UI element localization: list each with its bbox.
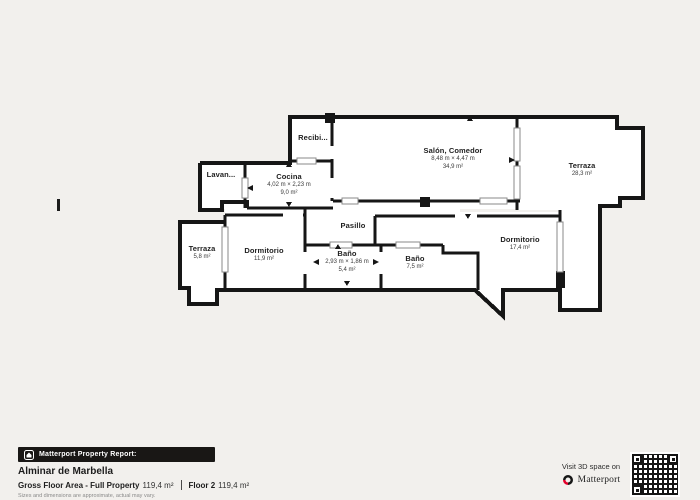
room-name: Recibi... (298, 133, 328, 142)
room-area: 5,8 m² (189, 253, 216, 261)
room-label-terraza-right: Terraza 28,3 m² (569, 161, 596, 178)
matterport-logo-icon (562, 474, 574, 486)
room-name: Lavan... (207, 170, 236, 179)
room-area: 9,0 m² (267, 189, 311, 197)
property-name: Alminar de Marbella (18, 466, 113, 477)
room-name: Baño (405, 254, 424, 263)
qr-code (630, 452, 680, 497)
disclaimer-text: Sizes and dimensions are approximate, ac… (18, 493, 155, 499)
room-name: Baño (325, 249, 369, 258)
room-label-salon-comedor: Salón, Comedor 8,48 m × 4,47 m 34,9 m² (424, 146, 483, 171)
room-name: Dormitorio (244, 246, 283, 255)
room-name: Cocina (267, 172, 311, 181)
gross-floor-area-value: 119,4 m² (143, 481, 174, 490)
gross-floor-area-label: Gross Floor Area - Full Property (18, 481, 140, 490)
room-label-bano-right: Baño 7,5 m² (405, 254, 424, 271)
report-bar-label: Matterport Property Report: (39, 451, 137, 458)
room-area: 34,9 m² (424, 163, 483, 171)
divider (181, 480, 182, 490)
floor-label: Floor 2 (189, 481, 216, 490)
visit-3d-block: Visit 3D space on Matterport (548, 462, 634, 486)
qr-finder-top-left (632, 454, 642, 464)
room-area: 7,5 m² (405, 263, 424, 271)
room-dimensions: 4,02 m × 2,23 m (267, 181, 311, 189)
room-area: 17,4 m² (500, 244, 539, 252)
room-dimensions: 8,48 m × 4,47 m (424, 155, 483, 163)
floor-area-line: Gross Floor Area - Full Property 119,4 m… (18, 480, 249, 490)
visit-3d-text: Visit 3D space on (548, 462, 634, 472)
report-bar: Matterport Property Report: (18, 447, 215, 462)
property-report-page: Recibi... Lavan... Cocina 4,02 m × 2,23 … (0, 0, 700, 500)
qr-finder-bottom-left (632, 485, 642, 495)
room-dimensions: 2,93 m × 1,86 m (325, 258, 369, 266)
floor-value: 119,4 m² (218, 481, 249, 490)
room-label-lavanderia: Lavan... (207, 170, 236, 179)
room-label-dormitorio-right: Dormitorio 17,4 m² (500, 235, 539, 252)
brand-name: Matterport (578, 475, 621, 485)
room-name: Dormitorio (500, 235, 539, 244)
room-label-cocina: Cocina 4,02 m × 2,23 m 9,0 m² (267, 172, 311, 197)
room-name: Salón, Comedor (424, 146, 483, 155)
room-label-bano-small: Baño 2,93 m × 1,86 m 5,4 m² (325, 249, 369, 274)
room-label-recibidor: Recibi... (298, 133, 328, 142)
room-name: Pasillo (341, 221, 366, 230)
qr-finder-top-right (668, 454, 678, 464)
room-label-pasillo: Pasillo (341, 221, 366, 230)
room-label-terraza-left: Terraza 5,8 m² (189, 244, 216, 261)
brand-row: Matterport (548, 474, 634, 486)
room-area: 11,9 m² (244, 255, 283, 263)
room-label-dormitorio-left: Dormitorio 11,9 m² (244, 246, 283, 263)
room-area: 28,3 m² (569, 170, 596, 178)
room-name: Terraza (569, 161, 596, 170)
house-icon (24, 450, 34, 460)
scale-tick (57, 199, 60, 211)
room-name: Terraza (189, 244, 216, 253)
room-area: 5,4 m² (325, 266, 369, 274)
